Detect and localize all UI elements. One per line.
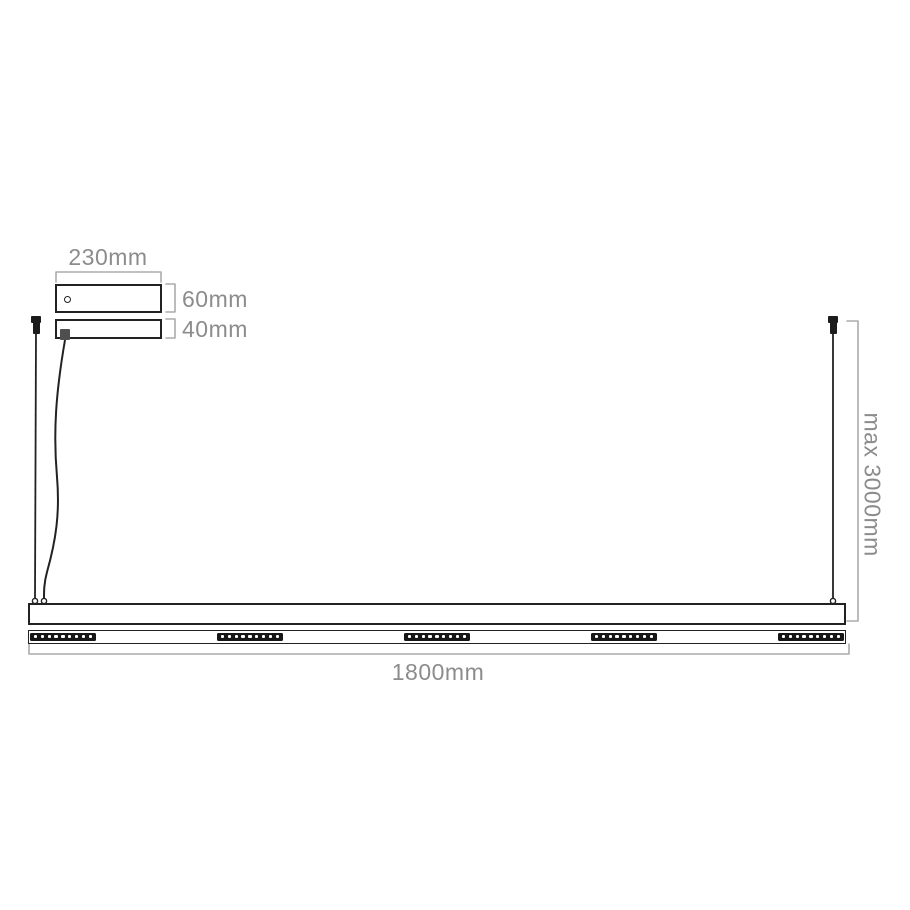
led-dot [428,635,431,638]
led-dot [241,635,244,638]
screw-hole [64,296,71,303]
ceiling-canopy-box [55,284,162,313]
cable-gripper-left-icon [31,316,41,334]
led-dot [262,635,265,638]
dim-label-plate-height: 40mm [182,318,248,341]
led-dot [802,635,805,638]
led-dot [622,635,625,638]
mounting-plate-box [55,319,162,339]
led-dot [463,635,466,638]
dim-label-fixture-length: 1800mm [338,661,538,684]
dim-bracket-60mm [166,284,175,312]
suspension-cable-left [35,333,36,598]
led-dot [34,635,37,638]
led-dot [609,635,612,638]
led-dot [89,635,92,638]
dim-label-canopy-width: 230mm [48,246,168,269]
led-dot [595,635,598,638]
led-dot [456,635,459,638]
fixture-bar [28,603,846,625]
drawing-linework [0,0,910,910]
led-dot [636,635,639,638]
led-dot [435,635,438,638]
power-cable [44,340,65,598]
led-dot [796,635,799,638]
led-segment [404,633,470,641]
led-strip [28,630,846,644]
led-dot [248,635,251,638]
led-dot [228,635,231,638]
led-segment [217,633,283,641]
led-dot [68,635,71,638]
led-dot [837,635,840,638]
dimension-drawing: 230mm 60mm 40mm max 3000mm 1800mm [0,0,910,910]
led-dot [415,635,418,638]
led-segment [591,633,657,641]
led-dot [602,635,605,638]
led-dot [830,635,833,638]
led-dot [75,635,78,638]
dim-bracket-230mm [56,272,161,282]
dim-bracket-max-3000mm [847,321,858,621]
led-dot [422,635,425,638]
led-dot [449,635,452,638]
led-dot [408,635,411,638]
led-segment [30,633,96,641]
led-dot [789,635,792,638]
led-dot [41,635,44,638]
led-dot [269,635,272,638]
led-dot [82,635,85,638]
led-dot [615,635,618,638]
led-dot [782,635,785,638]
led-dot [61,635,64,638]
led-dot [235,635,238,638]
led-dot [629,635,632,638]
led-dot [276,635,279,638]
dim-bracket-40mm [166,319,175,338]
dim-bracket-1800mm [29,644,849,654]
dim-label-canopy-height: 60mm [182,288,248,311]
led-dot [816,635,819,638]
led-dot [442,635,445,638]
led-segment [778,633,844,641]
led-dot [809,635,812,638]
led-dot [255,635,258,638]
led-dot [48,635,51,638]
led-dot [823,635,826,638]
led-dot [54,635,57,638]
power-connector [60,329,70,340]
led-dot [650,635,653,638]
led-dot [643,635,646,638]
led-dot [221,635,224,638]
dim-label-suspension-max: max 3000mm [861,413,884,545]
cable-gripper-right-icon [828,316,838,334]
